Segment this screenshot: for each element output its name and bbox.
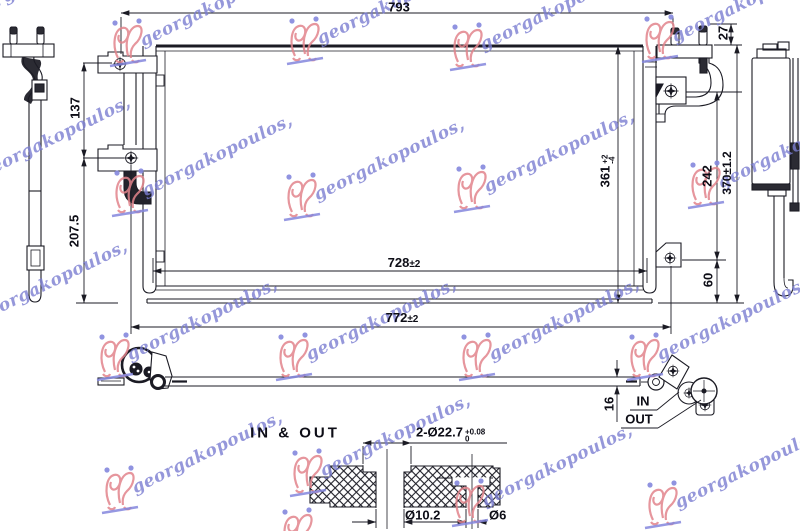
dim-bracket-gap-upper: 137 [69,97,82,119]
dim-core-height-value: 361 [598,166,613,188]
dim-port-holes-tol-dn: 0 [465,436,485,443]
dim-mount-width: 772±2 [386,311,419,325]
dim-overall-height: 370±1.2 [721,151,733,194]
technical-drawing-page: georgakopoulos,georgakopoulos,georgakopo… [0,0,800,531]
dim-pilot-hole: Ø6 [489,509,506,522]
label-outlet: OUT [625,413,652,426]
dim-core-width: 728±2 [388,256,421,270]
dim-core-height-tol-dn: -4 [609,155,616,164]
dim-port-holes: 2-Ø22.7+0.080 [416,426,485,443]
dim-bottom-mount-offset: 60 [702,273,715,287]
label-inlet: IN [637,395,650,408]
dim-bracket-gap-lower: 207.5 [68,215,81,248]
dim-top-width: 793 [388,1,410,14]
dim-mount-width-tol: ±2 [407,314,418,325]
dim-core-width-value: 728 [388,255,410,270]
dim-port-holes-value: 2-Ø22.7 [416,425,463,440]
dim-profile-thickness: 16 [603,397,616,411]
dimension-labels: 793 27 137 207.5 361+2-4 242 370±1.2 60 … [0,0,800,531]
dim-pin-height: 27 [717,26,730,40]
dim-core-width-tol: ±2 [409,259,420,270]
dim-port-bore: Ø10.2 [405,509,440,522]
dim-mount-width-value: 772 [386,310,408,325]
dim-core-height: 361+2-4 [599,155,616,188]
label-in-out-heading: IN & OUT [250,426,340,441]
dim-right-mount-gap: 242 [701,165,714,187]
